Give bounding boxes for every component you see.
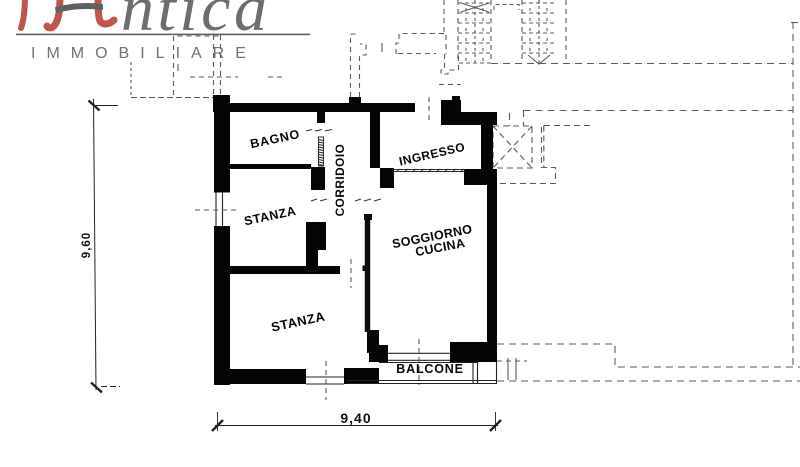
svg-text:INGRESSO: INGRESSO: [398, 140, 467, 169]
svg-text:STANZA: STANZA: [243, 204, 298, 229]
svg-text:BALCONE: BALCONE: [396, 362, 463, 376]
svg-text:ntica: ntica: [121, 0, 270, 45]
svg-text:9,60: 9,60: [81, 232, 93, 258]
svg-text:BAGNO: BAGNO: [249, 127, 301, 151]
svg-text:STANZA: STANZA: [270, 309, 327, 335]
svg-text:CORRIDOIO: CORRIDOIO: [333, 144, 347, 217]
svg-text:IMMOBILIARE: IMMOBILIARE: [31, 45, 257, 62]
svg-text:9,40: 9,40: [340, 410, 371, 426]
